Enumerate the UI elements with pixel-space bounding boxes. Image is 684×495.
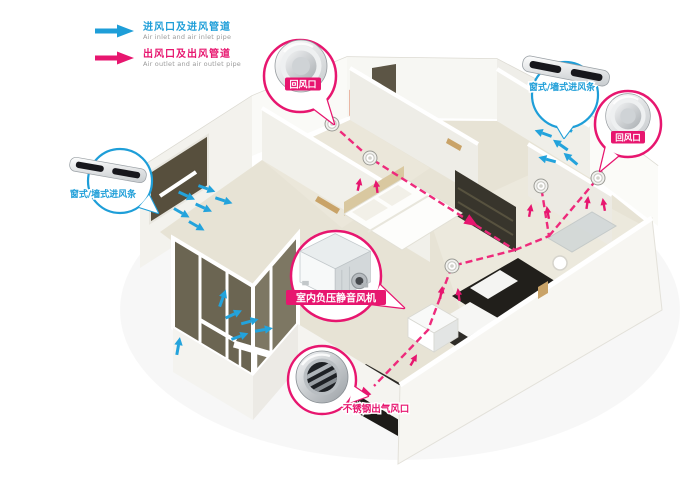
callout-outlet-label: 不锈钢出气风口 xyxy=(343,403,410,415)
ventilation-system-diagram: 进风口及进风管道 Air inlet and air inlet pipe 出风… xyxy=(0,0,684,495)
callout-fan-label: 室内负压静音风机 xyxy=(296,292,376,305)
legend: 进风口及进风管道 Air inlet and air inlet pipe 出风… xyxy=(95,22,241,76)
outlet-arrow-icon xyxy=(95,51,135,65)
callout-right-inlet-label: 窗式/墙式进风条 xyxy=(529,81,596,93)
legend-item-outlet: 出风口及出风管道 Air outlet and air outlet pipe xyxy=(95,49,241,68)
legend-outlet-label: 出风口及出风管道 xyxy=(143,49,241,60)
callout-left-inlet-label: 窗式/墙式进风条 xyxy=(70,188,137,200)
legend-outlet-sublabel: Air outlet and air outlet pipe xyxy=(143,61,241,68)
callout-top-return-label: 回风口 xyxy=(289,80,316,91)
callout-left-inlet: 窗式/墙式进风条 xyxy=(69,149,158,213)
legend-item-inlet: 进风口及进风管道 Air inlet and air inlet pipe xyxy=(95,22,241,41)
legend-inlet-label: 进风口及进风管道 xyxy=(143,22,231,33)
inlet-arrow-icon xyxy=(95,24,135,38)
callout-right-return-label: 回风口 xyxy=(615,134,641,144)
stainless-outlet-vent-image xyxy=(296,351,348,403)
legend-inlet-sublabel: Air inlet and air inlet pipe xyxy=(143,34,231,41)
